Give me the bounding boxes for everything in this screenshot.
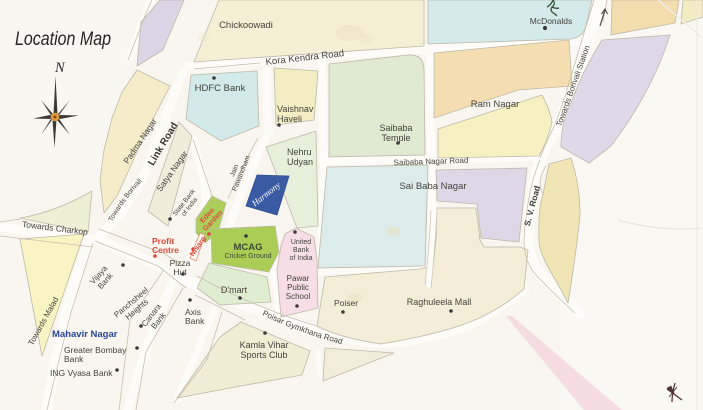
svg-text:Kamla Vihar: Kamla Vihar bbox=[240, 340, 289, 350]
svg-text:Bank: Bank bbox=[185, 316, 205, 326]
svg-text:Saibaba: Saibaba bbox=[379, 123, 412, 133]
svg-text:Cricket Ground: Cricket Ground bbox=[224, 253, 271, 260]
svg-text:Raghuleela Mall: Raghuleela Mall bbox=[407, 297, 472, 307]
svg-text:N: N bbox=[54, 60, 66, 76]
svg-text:Poiser: Poiser bbox=[334, 298, 358, 308]
svg-text:Location Map: Location Map bbox=[15, 28, 111, 50]
svg-text:McDonalds: McDonalds bbox=[530, 16, 573, 26]
svg-text:Sports Club: Sports Club bbox=[240, 350, 287, 360]
svg-text:Udyan: Udyan bbox=[287, 157, 313, 167]
svg-text:Mahavir Nagar: Mahavir Nagar bbox=[52, 329, 118, 340]
svg-text:Ram Nagar: Ram Nagar bbox=[471, 99, 520, 110]
svg-text:Chickoowadi: Chickoowadi bbox=[219, 20, 273, 31]
svg-text:School: School bbox=[286, 292, 311, 301]
svg-text:Sai Baba Nagar: Sai Baba Nagar bbox=[399, 181, 466, 192]
svg-text:Centre: Centre bbox=[152, 245, 179, 255]
svg-text:MCAG: MCAG bbox=[233, 242, 262, 253]
svg-text:HDFC Bank: HDFC Bank bbox=[195, 83, 246, 94]
svg-text:Bank: Bank bbox=[64, 354, 84, 364]
svg-text:Public: Public bbox=[287, 283, 309, 292]
svg-text:Nehru: Nehru bbox=[287, 147, 312, 157]
svg-text:Hut: Hut bbox=[173, 267, 187, 277]
svg-text:D'mart: D'mart bbox=[221, 285, 248, 295]
svg-text:of India: of India bbox=[290, 255, 313, 262]
svg-text:ING Vyasa Bank: ING Vyasa Bank bbox=[50, 368, 113, 378]
svg-text:Haveli: Haveli bbox=[277, 114, 302, 124]
svg-text:Bank: Bank bbox=[293, 247, 309, 254]
svg-text:Pawar: Pawar bbox=[287, 274, 310, 283]
svg-text:United: United bbox=[291, 239, 311, 246]
svg-text:Vaishnav: Vaishnav bbox=[277, 104, 314, 114]
svg-text:Temple: Temple bbox=[381, 133, 410, 143]
